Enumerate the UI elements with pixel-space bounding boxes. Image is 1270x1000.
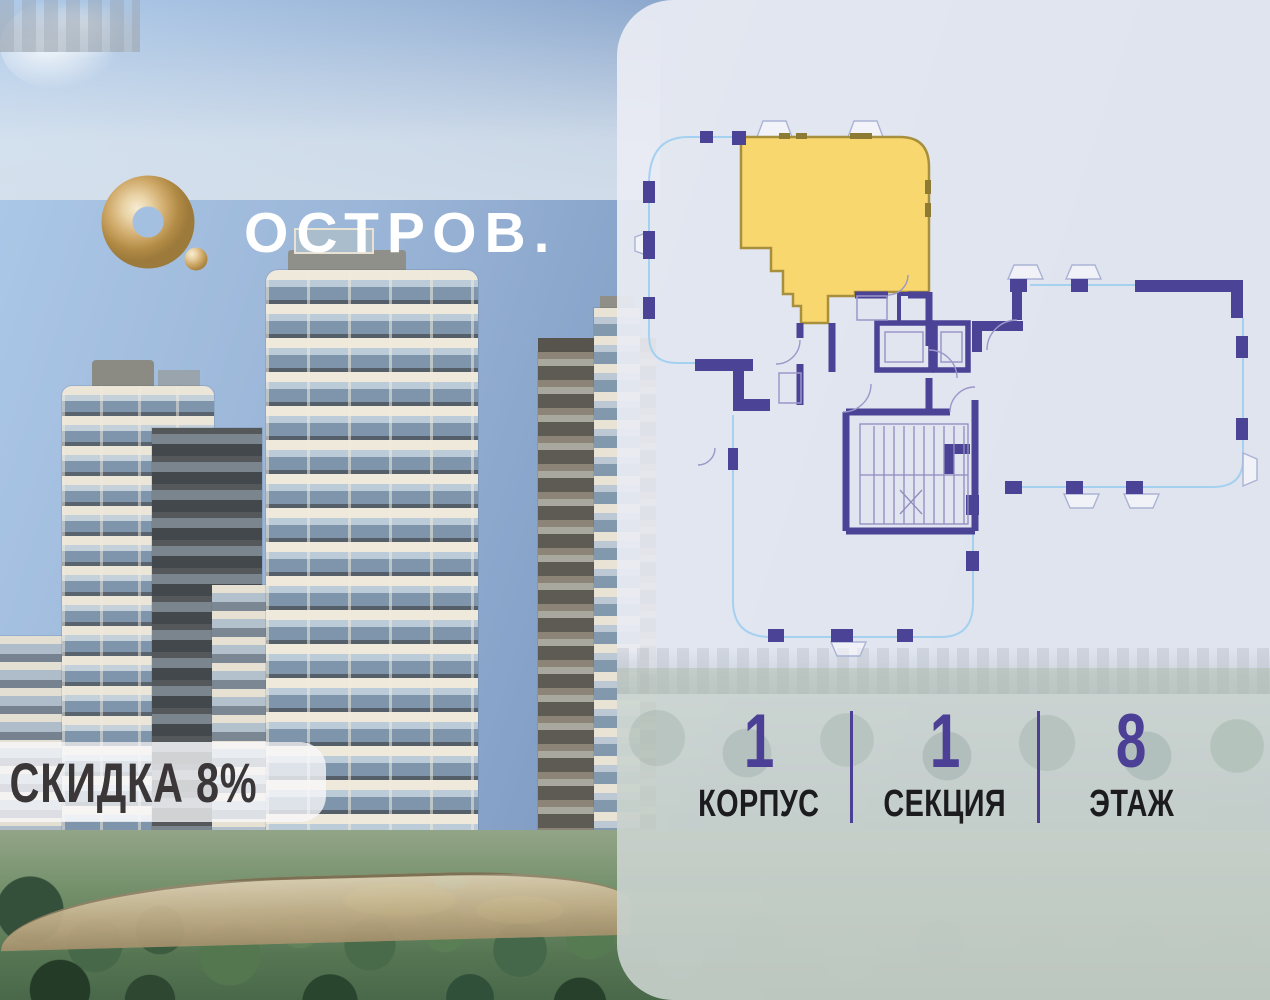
building-roof <box>92 360 154 388</box>
discount-badge: СКИДКА 8% <box>0 742 326 822</box>
brand-logo-icon <box>96 170 216 280</box>
city-skyline <box>0 0 140 52</box>
stat-section-value: 1 <box>930 704 960 780</box>
stat-floor-value: 8 <box>1116 704 1146 780</box>
stat-building: 1 КОРПУС <box>667 704 850 826</box>
listing-card[interactable]: ОСТРОВ. СКИДКА 8% 1 КОРПУС 1 СЕКЦИЯ 8 ЭТ… <box>0 0 1270 1000</box>
stat-building-value: 1 <box>743 704 773 780</box>
stat-section: 1 СЕКЦИЯ <box>853 704 1036 826</box>
stat-floor: 8 ЭТАЖ <box>1040 704 1223 826</box>
apartment-stats: 1 КОРПУС 1 СЕКЦИЯ 8 ЭТАЖ <box>667 704 1223 826</box>
floor-plan <box>628 106 1270 686</box>
stat-section-label: СЕКЦИЯ <box>884 783 1007 826</box>
stat-floor-label: ЭТАЖ <box>1089 783 1174 826</box>
discount-text: СКИДКА 8% <box>9 750 257 815</box>
stat-building-label: КОРПУС <box>698 783 819 826</box>
brand-name: ОСТРОВ. <box>244 205 558 262</box>
